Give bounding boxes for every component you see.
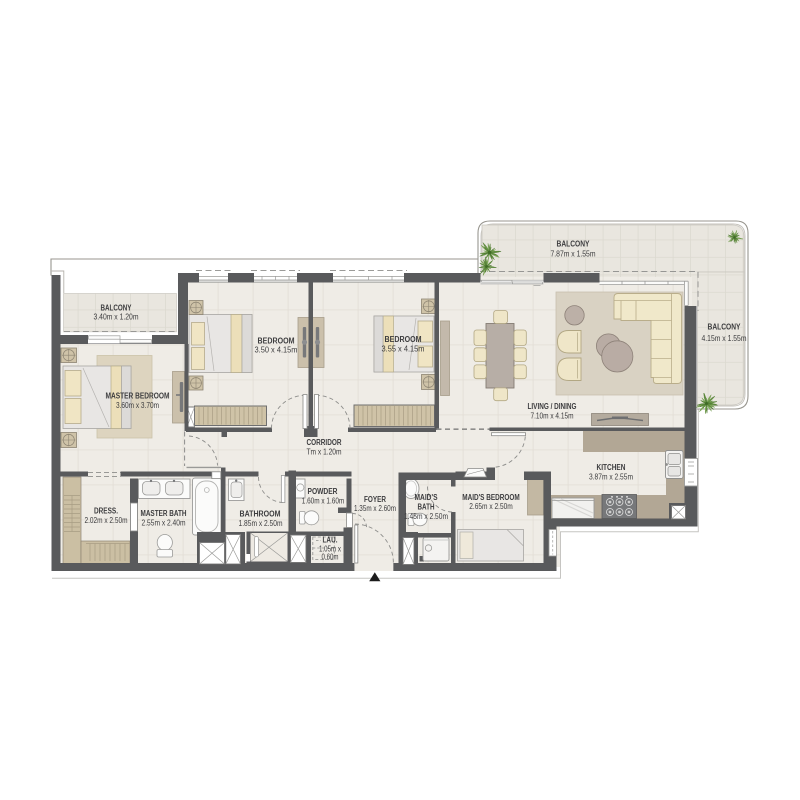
svg-text:BALCONY: BALCONY	[557, 239, 590, 249]
svg-text:3.40m x 1.20m: 3.40m x 1.20m	[94, 313, 139, 322]
svg-text:3.55 x 4.15m: 3.55 x 4.15m	[382, 345, 425, 354]
svg-text:MASTER BEDROOM: MASTER BEDROOM	[106, 391, 170, 401]
svg-text:1.85m x 2.50m: 1.85m x 2.50m	[239, 519, 283, 528]
svg-text:POWDER: POWDER	[308, 486, 339, 496]
svg-text:MAID'S BEDROOM: MAID'S BEDROOM	[462, 492, 520, 502]
svg-text:2.02m x 2.50m: 2.02m x 2.50m	[85, 516, 128, 525]
svg-text:4.15m x 1.55m: 4.15m x 1.55m	[702, 334, 747, 343]
svg-text:MAID'S: MAID'S	[415, 492, 438, 502]
svg-text:BATHROOM: BATHROOM	[240, 509, 281, 519]
svg-text:7.87m x 1.55m: 7.87m x 1.55m	[551, 250, 596, 259]
svg-text:LIVING / DINING: LIVING / DINING	[528, 401, 577, 411]
svg-text:1.35m x 2.60m: 1.35m x 2.60m	[354, 504, 396, 513]
svg-text:DRESS.: DRESS.	[94, 506, 118, 516]
svg-text:BALCONY: BALCONY	[101, 303, 132, 313]
svg-text:BEDROOM: BEDROOM	[385, 334, 422, 344]
svg-text:CORRIDOR: CORRIDOR	[307, 437, 343, 447]
svg-text:MASTER BATH: MASTER BATH	[141, 508, 187, 518]
svg-text:FOYER: FOYER	[364, 494, 387, 504]
svg-text:3.60m x 3.70m: 3.60m x 3.70m	[116, 401, 159, 410]
svg-text:1.45m x 2.50m: 1.45m x 2.50m	[404, 512, 448, 521]
svg-text:Tm x 1.20m: Tm x 1.20m	[307, 448, 342, 457]
svg-text:2.65m x 2.50m: 2.65m x 2.50m	[469, 502, 513, 511]
svg-text:KITCHEN: KITCHEN	[597, 462, 626, 472]
svg-text:BATH: BATH	[418, 502, 435, 512]
svg-text:3.50 x 4.15m: 3.50 x 4.15m	[255, 346, 298, 355]
svg-text:7.10m x 4.15m: 7.10m x 4.15m	[531, 411, 574, 420]
svg-text:0.60m: 0.60m	[322, 553, 339, 562]
svg-text:3.87m x 2.55m: 3.87m x 2.55m	[589, 473, 633, 482]
svg-text:BALCONY: BALCONY	[708, 322, 741, 332]
svg-text:2.55m x 2.40m: 2.55m x 2.40m	[142, 519, 186, 528]
svg-text:1.60m x 1.60m: 1.60m x 1.60m	[302, 497, 345, 506]
svg-text:LAU.: LAU.	[323, 535, 338, 545]
svg-text:BEDROOM: BEDROOM	[258, 336, 295, 346]
